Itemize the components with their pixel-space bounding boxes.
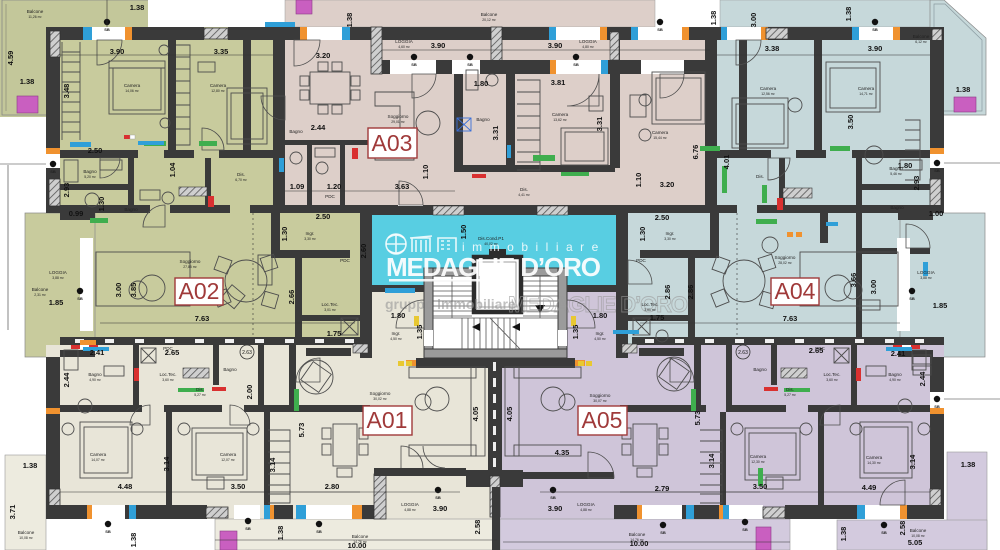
svg-text:5.73: 5.73 — [693, 411, 702, 426]
svg-text:PDC: PDC — [636, 258, 646, 263]
svg-text:Loc.Tec.: Loc.Tec. — [159, 372, 176, 377]
svg-text:SB: SB — [411, 62, 417, 67]
svg-text:2.86: 2.86 — [686, 285, 695, 300]
svg-text:3.66: 3.66 — [849, 273, 858, 288]
svg-text:12,30 m²: 12,30 m² — [751, 460, 765, 464]
svg-text:1.38: 1.38 — [23, 461, 38, 470]
svg-text:2.93: 2.93 — [62, 183, 71, 198]
svg-text:40,02 m²: 40,02 m² — [484, 242, 498, 246]
svg-text:SB: SB — [104, 27, 110, 32]
svg-text:Bagno: Bagno — [888, 372, 902, 377]
svg-text:Soggiorno: Soggiorno — [590, 393, 611, 398]
svg-text:A02: A02 — [179, 278, 220, 304]
svg-text:A03: A03 — [372, 130, 413, 156]
svg-text:2.00: 2.00 — [245, 385, 254, 400]
svg-text:1.38: 1.38 — [130, 3, 145, 12]
svg-text:4,60 m²: 4,60 m² — [398, 45, 410, 49]
svg-text:1.80: 1.80 — [474, 79, 489, 88]
svg-text:5,27 m²: 5,27 m² — [784, 393, 796, 397]
svg-text:Soggiorno: Soggiorno — [775, 255, 796, 260]
svg-text:5,20 m²: 5,20 m² — [84, 175, 96, 179]
svg-text:1.20: 1.20 — [327, 182, 342, 191]
svg-text:Camera: Camera — [866, 455, 883, 460]
svg-text:4,88 m²: 4,88 m² — [580, 508, 592, 512]
svg-text:4,50 m²: 4,50 m² — [594, 337, 606, 341]
svg-text:4.48: 4.48 — [118, 482, 133, 491]
svg-text:13,62 m²: 13,62 m² — [553, 118, 567, 122]
svg-text:Ingr.: Ingr. — [596, 331, 605, 336]
svg-text:Balcone: Balcone — [32, 287, 49, 292]
svg-text:2.50: 2.50 — [316, 212, 331, 221]
svg-text:1.50: 1.50 — [459, 225, 468, 240]
svg-text:3.90: 3.90 — [431, 41, 446, 50]
svg-text:PDC: PDC — [340, 258, 350, 263]
svg-text:SB: SB — [909, 296, 915, 301]
svg-text:Balcone: Balcone — [481, 12, 498, 17]
svg-text:1.80: 1.80 — [391, 311, 406, 320]
svg-text:3.14: 3.14 — [162, 456, 171, 471]
svg-text:2.50: 2.50 — [88, 146, 103, 155]
svg-text:3.90: 3.90 — [433, 504, 448, 513]
svg-text:5,46 m²: 5,46 m² — [890, 172, 902, 176]
svg-text:3.14: 3.14 — [707, 453, 716, 468]
svg-text:4,90 m²: 4,90 m² — [89, 378, 101, 382]
svg-text:SB: SB — [934, 404, 940, 409]
svg-text:4,88 m²: 4,88 m² — [404, 508, 416, 512]
svg-text:6,12 m²: 6,12 m² — [915, 40, 927, 44]
svg-text:Ingr.: Ingr. — [306, 231, 315, 236]
svg-text:3,30 m²: 3,30 m² — [304, 237, 316, 241]
svg-text:3.63: 3.63 — [395, 182, 410, 191]
svg-text:SB: SB — [435, 495, 441, 500]
svg-text:A01: A01 — [367, 407, 408, 433]
svg-text:1.80: 1.80 — [593, 311, 608, 320]
svg-text:Bagno: Bagno — [289, 129, 303, 134]
svg-text:Soggiorno: Soggiorno — [180, 259, 201, 264]
svg-text:2.44: 2.44 — [311, 123, 326, 132]
svg-text:2.60: 2.60 — [359, 244, 368, 259]
svg-text:2.41: 2.41 — [891, 349, 906, 358]
svg-text:11,26 m²: 11,26 m² — [28, 15, 42, 19]
svg-text:3.31: 3.31 — [595, 117, 604, 132]
svg-text:1.30: 1.30 — [280, 227, 289, 242]
svg-text:3,88 m²: 3,88 m² — [52, 276, 64, 280]
svg-text:3,88 m²: 3,88 m² — [920, 276, 932, 280]
svg-text:Camera: Camera — [652, 130, 669, 135]
svg-text:3.81: 3.81 — [551, 78, 566, 87]
svg-text:3,60 m²: 3,60 m² — [162, 378, 174, 382]
svg-text:SB: SB — [872, 27, 878, 32]
svg-text:Bagno: Bagno — [88, 372, 102, 377]
svg-text:14,71 m²: 14,71 m² — [859, 92, 873, 96]
svg-text:5,27 m²: 5,27 m² — [194, 393, 206, 397]
svg-text:MEDAGLIE D’ORO: MEDAGLIE D’ORO — [386, 252, 602, 282]
svg-text:Camera: Camera — [90, 452, 107, 457]
svg-text:Camera: Camera — [760, 86, 777, 91]
svg-text:SB: SB — [467, 62, 473, 67]
svg-text:4,41 m²: 4,41 m² — [518, 193, 530, 197]
svg-text:2.66: 2.66 — [287, 290, 296, 305]
svg-text:Dis.: Dis. — [786, 387, 794, 392]
svg-text:Balcone: Balcone — [18, 530, 35, 535]
svg-text:1.04: 1.04 — [168, 162, 177, 177]
svg-text:30,02 m²: 30,02 m² — [373, 397, 387, 401]
svg-text:Bagno: Bagno — [890, 205, 904, 210]
svg-text:30,07 m²: 30,07 m² — [593, 399, 607, 403]
svg-text:SB: SB — [657, 27, 663, 32]
svg-text:1.85: 1.85 — [933, 301, 948, 310]
svg-text:1.09: 1.09 — [290, 182, 305, 191]
svg-text:10.00: 10.00 — [630, 539, 649, 548]
svg-text:4.05: 4.05 — [505, 407, 514, 422]
svg-text:14,30 m²: 14,30 m² — [867, 461, 881, 465]
svg-text:Balcone: Balcone — [27, 9, 44, 14]
svg-text:Dis.: Dis. — [196, 387, 204, 392]
svg-text:Loc.Tec.: Loc.Tec. — [321, 302, 338, 307]
svg-text:Loc.Tec.: Loc.Tec. — [823, 372, 840, 377]
svg-text:1.38: 1.38 — [129, 533, 138, 548]
svg-text:5.05: 5.05 — [908, 538, 923, 547]
svg-text:1.35: 1.35 — [415, 325, 424, 340]
svg-text:Dis.: Dis. — [756, 174, 764, 179]
svg-text:1.10: 1.10 — [421, 165, 430, 180]
svg-text:SB: SB — [316, 529, 322, 534]
svg-text:Ingr.: Ingr. — [392, 331, 401, 336]
svg-text:27,85 m²: 27,85 m² — [183, 265, 197, 269]
svg-text:1.35: 1.35 — [571, 325, 580, 340]
svg-text:SB: SB — [934, 168, 940, 173]
svg-text:2.86: 2.86 — [663, 285, 672, 300]
svg-text:LOGGIA: LOGGIA — [579, 39, 598, 44]
svg-text:SB: SB — [105, 529, 111, 534]
svg-text:SB: SB — [77, 296, 83, 301]
svg-text:4.59: 4.59 — [6, 51, 15, 66]
svg-text:Camera: Camera — [858, 86, 875, 91]
svg-text:3.00: 3.00 — [869, 280, 878, 295]
svg-text:Dis.: Dis. — [237, 172, 245, 177]
svg-text:1.38: 1.38 — [20, 77, 35, 86]
svg-text:3.50: 3.50 — [753, 482, 768, 491]
svg-text:3.90: 3.90 — [110, 47, 125, 56]
svg-text:Bagno: Bagno — [124, 207, 138, 212]
svg-text:3.50: 3.50 — [231, 482, 246, 491]
svg-text:2.44: 2.44 — [918, 371, 927, 386]
svg-text:3.50: 3.50 — [846, 115, 855, 130]
svg-text:1.75: 1.75 — [327, 329, 342, 338]
svg-text:Soggiorno: Soggiorno — [370, 391, 391, 396]
svg-text:2.93: 2.93 — [912, 176, 921, 191]
svg-text:4.05: 4.05 — [471, 407, 480, 422]
svg-text:14,07 m²: 14,07 m² — [91, 458, 105, 462]
svg-text:3.71: 3.71 — [8, 505, 17, 520]
svg-text:1.75: 1.75 — [650, 313, 665, 322]
svg-text:12,07 m²: 12,07 m² — [221, 458, 235, 462]
svg-text:Balcone: Balcone — [352, 534, 369, 539]
svg-text:Balcone: Balcone — [910, 528, 927, 533]
svg-text:1.10: 1.10 — [634, 173, 643, 188]
svg-text:1.38: 1.38 — [839, 527, 848, 542]
svg-text:Bagno: Bagno — [83, 169, 97, 174]
svg-text:Bagno: Bagno — [476, 117, 490, 122]
svg-text:A05: A05 — [582, 407, 623, 433]
svg-text:1.80: 1.80 — [898, 161, 913, 170]
svg-text:Dis.Cond.P1: Dis.Cond.P1 — [478, 236, 504, 241]
svg-text:2.63: 2.63 — [738, 350, 748, 356]
svg-text:6.76: 6.76 — [691, 145, 700, 160]
svg-text:LOGGIA: LOGGIA — [49, 270, 68, 275]
svg-text:Soggiorno: Soggiorno — [388, 114, 409, 119]
svg-text:1.85: 1.85 — [49, 298, 64, 307]
svg-text:3.85: 3.85 — [129, 283, 138, 298]
svg-text:3.20: 3.20 — [316, 51, 331, 60]
svg-text:Camera: Camera — [750, 454, 767, 459]
svg-text:Ingr.: Ingr. — [666, 231, 675, 236]
svg-text:29,01 m²: 29,01 m² — [391, 120, 405, 124]
svg-text:2.58: 2.58 — [473, 520, 482, 535]
svg-text:3.31: 3.31 — [491, 126, 500, 141]
svg-text:4.35: 4.35 — [555, 448, 570, 457]
svg-text:0.99: 0.99 — [69, 209, 84, 218]
svg-text:2.80: 2.80 — [325, 482, 340, 491]
svg-text:6,70 m²: 6,70 m² — [235, 178, 247, 182]
svg-text:2.63: 2.63 — [242, 350, 252, 356]
svg-text:1.00: 1.00 — [929, 209, 944, 218]
svg-text:12,80 m²: 12,80 m² — [211, 89, 225, 93]
svg-text:SB: SB — [742, 527, 748, 532]
svg-text:LOGGIA: LOGGIA — [401, 502, 420, 507]
svg-text:2,31 m²: 2,31 m² — [34, 293, 46, 297]
svg-text:3.00: 3.00 — [114, 283, 123, 298]
svg-text:10,08 m²: 10,08 m² — [19, 536, 33, 540]
svg-text:10.00: 10.00 — [348, 541, 367, 550]
svg-text:Camera: Camera — [552, 112, 569, 117]
svg-text:Dis.: Dis. — [520, 187, 528, 192]
svg-text:2.44: 2.44 — [62, 372, 71, 387]
svg-text:2.79: 2.79 — [655, 484, 670, 493]
svg-text:3.90: 3.90 — [548, 504, 563, 513]
svg-text:1.38: 1.38 — [345, 13, 354, 28]
svg-text:3.90: 3.90 — [868, 44, 883, 53]
svg-text:3.90: 3.90 — [548, 41, 563, 50]
svg-text:3.14: 3.14 — [908, 454, 917, 469]
svg-text:2.65: 2.65 — [809, 346, 824, 355]
svg-text:12,56 m²: 12,56 m² — [761, 92, 775, 96]
svg-text:4,80 m²: 4,80 m² — [582, 45, 594, 49]
svg-text:2.65: 2.65 — [165, 348, 180, 357]
svg-text:SB: SB — [550, 495, 556, 500]
svg-text:Bagno: Bagno — [753, 367, 767, 372]
svg-text:4.49: 4.49 — [862, 483, 877, 492]
svg-text:3,60 m²: 3,60 m² — [826, 378, 838, 382]
svg-text:4,50 m²: 4,50 m² — [390, 337, 402, 341]
svg-text:1.38: 1.38 — [709, 11, 718, 26]
svg-text:Balcone: Balcone — [629, 532, 646, 537]
svg-text:A04: A04 — [775, 278, 816, 304]
svg-text:SB: SB — [50, 169, 56, 174]
svg-text:2.58: 2.58 — [898, 521, 907, 536]
svg-text:PDC: PDC — [325, 194, 335, 199]
svg-text:LOGGIA: LOGGIA — [577, 502, 596, 507]
svg-text:Camera: Camera — [210, 83, 227, 88]
svg-text:Camera: Camera — [124, 83, 141, 88]
svg-text:4.01: 4.01 — [722, 155, 731, 170]
svg-text:3.14: 3.14 — [268, 457, 277, 472]
svg-text:15,44 m²: 15,44 m² — [653, 136, 667, 140]
svg-text:3.35: 3.35 — [214, 47, 229, 56]
svg-text:7.63: 7.63 — [195, 314, 210, 323]
svg-text:1.30: 1.30 — [97, 197, 106, 212]
svg-text:Camera: Camera — [220, 452, 237, 457]
svg-text:3.38: 3.38 — [765, 44, 780, 53]
svg-text:SB: SB — [245, 526, 251, 531]
svg-text:1.38: 1.38 — [276, 526, 285, 541]
svg-text:2.41: 2.41 — [90, 348, 105, 357]
svg-text:3,30 m²: 3,30 m² — [664, 237, 676, 241]
svg-text:SB: SB — [573, 62, 579, 67]
svg-text:3.20: 3.20 — [660, 180, 675, 189]
svg-text:4,90 m²: 4,90 m² — [889, 378, 901, 382]
svg-text:Loc.Tec.: Loc.Tec. — [641, 302, 658, 307]
svg-text:2.50: 2.50 — [655, 213, 670, 222]
svg-text:LOGGIA: LOGGIA — [917, 270, 936, 275]
svg-text:Balcone: Balcone — [913, 34, 930, 39]
svg-text:20,12 m²: 20,12 m² — [482, 18, 496, 22]
svg-text:28,02 m²: 28,02 m² — [778, 261, 792, 265]
svg-text:1.38: 1.38 — [961, 460, 976, 469]
svg-text:1.38: 1.38 — [844, 7, 853, 22]
svg-text:gruppo immobiliare: gruppo immobiliare — [385, 296, 516, 312]
svg-text:3.48: 3.48 — [62, 84, 71, 99]
svg-text:3,01 m²: 3,01 m² — [644, 308, 656, 312]
svg-text:1.30: 1.30 — [638, 227, 647, 242]
svg-text:7.63: 7.63 — [783, 314, 798, 323]
svg-text:5.73: 5.73 — [297, 423, 306, 438]
svg-text:14,06 m²: 14,06 m² — [125, 89, 139, 93]
svg-text:SB: SB — [660, 530, 666, 535]
svg-text:LOGGIA: LOGGIA — [395, 39, 414, 44]
svg-text:1.38: 1.38 — [956, 85, 971, 94]
svg-text:SB: SB — [881, 530, 887, 535]
svg-text:Bagno: Bagno — [223, 367, 237, 372]
svg-text:3,01 m²: 3,01 m² — [324, 308, 336, 312]
svg-text:3.00: 3.00 — [749, 13, 758, 28]
